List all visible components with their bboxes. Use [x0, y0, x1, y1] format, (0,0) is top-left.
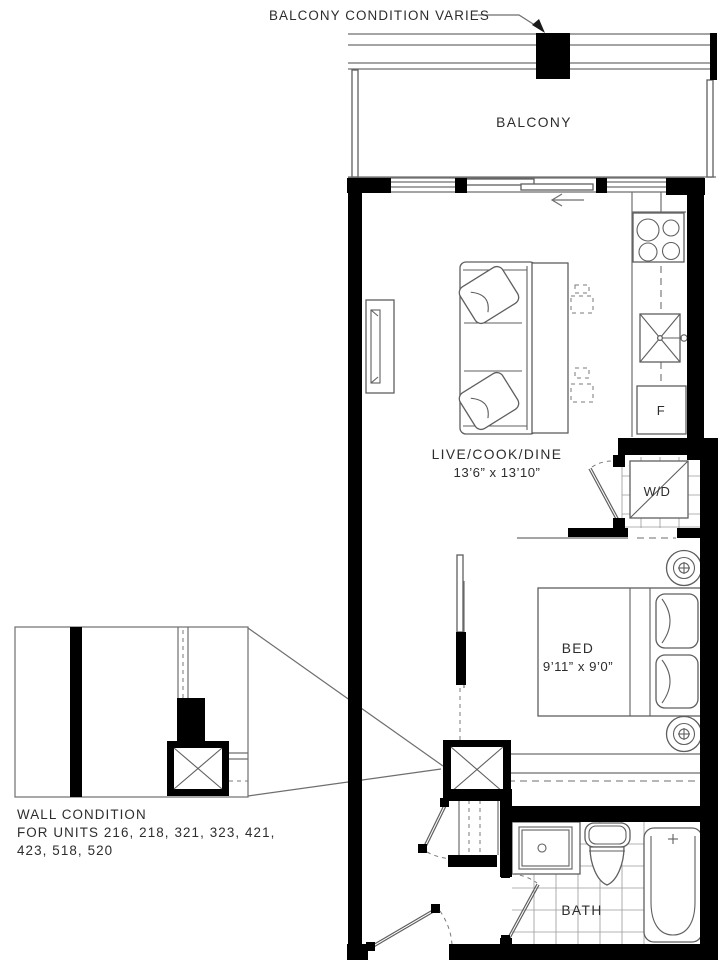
- entry-closet-door: [418, 798, 452, 859]
- detail-column-marker: [167, 741, 229, 796]
- dining-chairs: [571, 285, 593, 402]
- kitchen-sink: [640, 314, 687, 362]
- stove: [633, 213, 684, 262]
- side-table: [667, 717, 702, 752]
- dining-table: [532, 263, 568, 433]
- floor-plan-drawing: BALCONY CONDITION VARIES BALCONY LIVE/CO…: [0, 0, 728, 967]
- slide-direction-arrow: [552, 194, 584, 206]
- tv-unit: [366, 300, 394, 393]
- floor-plan: BALCONY CONDITION VARIES BALCONY LIVE/CO…: [0, 0, 728, 967]
- bedroom-dimensions: 9’11” x 9’0”: [543, 659, 613, 674]
- living-room-label: LIVE/COOK/DINE: [432, 447, 563, 462]
- washer-dryer-label: W/D: [644, 484, 671, 499]
- bathroom-label: BATH: [561, 903, 602, 918]
- wall-condition-detail: [15, 627, 248, 797]
- wall-condition-label-line2: FOR UNITS 216, 218, 321, 323, 421,: [17, 825, 275, 840]
- vanity-sink: [512, 822, 580, 874]
- detail-leader-lines: [248, 628, 443, 796]
- balcony-post-right: [707, 80, 713, 177]
- bathtub: [644, 828, 702, 942]
- side-table: [667, 551, 702, 586]
- balcony-post-left: [352, 70, 358, 177]
- entry-door: [366, 904, 452, 951]
- wall-condition-label-line3: 423, 518, 520: [17, 843, 113, 858]
- balcony-marker: [536, 33, 570, 79]
- fridge-label: F: [657, 403, 665, 418]
- sliding-door-panel: [521, 184, 593, 190]
- living-room-dimensions: 13’6” x 13’10”: [454, 465, 541, 480]
- laundry-door: [589, 461, 619, 521]
- toilet: [585, 823, 630, 885]
- bedroom-closet: [508, 754, 716, 781]
- entry: [366, 798, 498, 951]
- window-band: [348, 178, 704, 206]
- bedroom-label: BED: [562, 641, 595, 656]
- entry-closet: [459, 800, 498, 855]
- bathroom: [501, 822, 702, 944]
- wall-condition-label-line1: WALL CONDITION: [17, 807, 147, 822]
- bed-pillow: [656, 655, 698, 708]
- bathroom-door: [501, 869, 539, 944]
- sofa: [457, 262, 536, 434]
- kitchen: [632, 192, 687, 437]
- balcony-condition-note: BALCONY CONDITION VARIES: [269, 8, 490, 23]
- bed-pillow: [656, 594, 698, 648]
- balcony-label: BALCONY: [496, 115, 572, 130]
- balcony: [348, 33, 717, 177]
